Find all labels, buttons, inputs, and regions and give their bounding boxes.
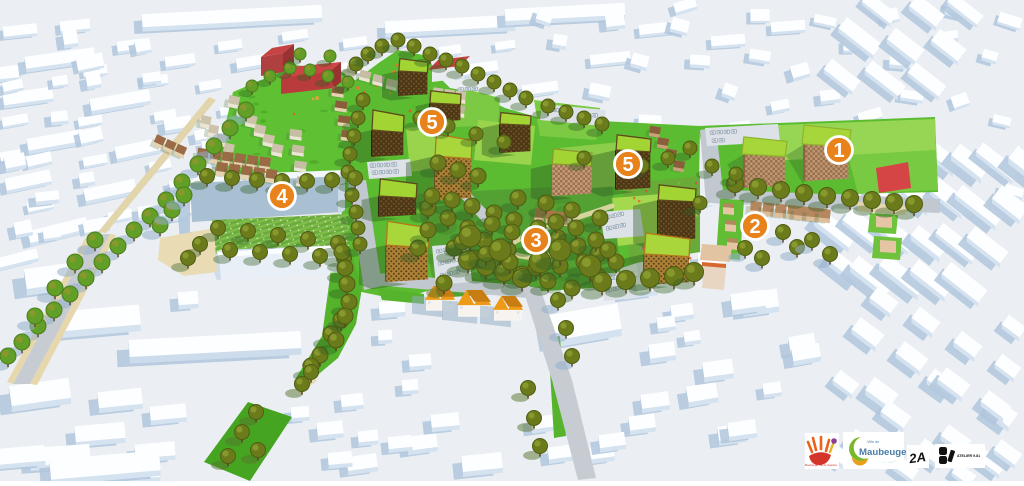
svg-text:3: 3 [530,230,541,252]
svg-text:ATELIER 9.81: ATELIER 9.81 [957,454,980,458]
svg-text:5: 5 [426,112,437,134]
svg-text:Maubeuge Val de Sambre: Maubeuge Val de Sambre [805,463,838,467]
svg-text:Ville de: Ville de [867,440,879,444]
svg-text:2: 2 [749,216,760,238]
svg-text:4: 4 [276,186,288,208]
svg-text:1: 1 [833,140,844,162]
svg-text:2A: 2A [907,449,927,466]
svg-text:Maubeuge: Maubeuge [859,447,906,458]
svg-text:5: 5 [622,154,633,176]
